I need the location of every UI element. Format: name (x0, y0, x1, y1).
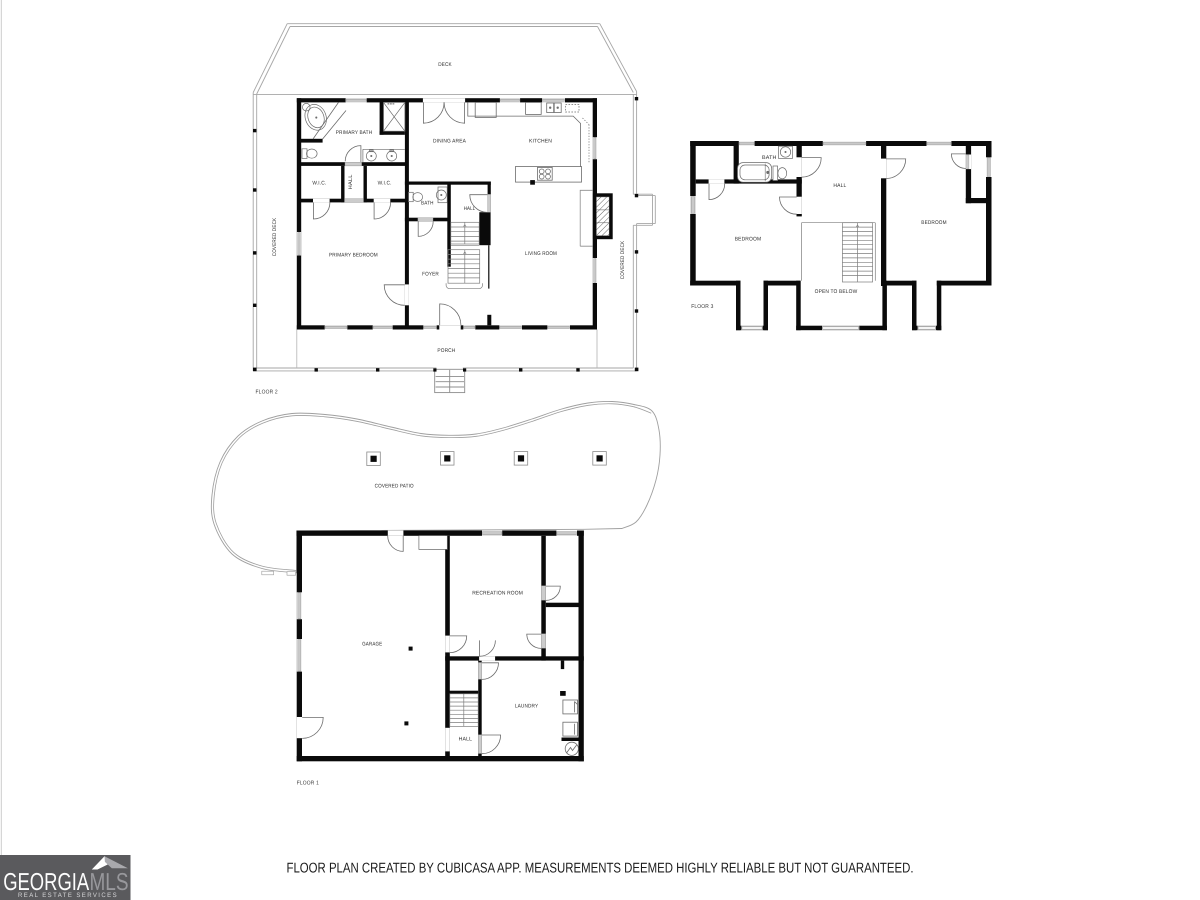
svg-text:W.I.C.: W.I.C. (312, 180, 326, 186)
svg-text:PRIMARY BEDROOM: PRIMARY BEDROOM (329, 253, 378, 259)
svg-text:BATH: BATH (421, 200, 434, 206)
svg-text:OPEN TO BELOW: OPEN TO BELOW (815, 289, 858, 295)
svg-text:KITCHEN: KITCHEN (529, 139, 552, 145)
svg-text:LIVING ROOM: LIVING ROOM (525, 251, 557, 257)
svg-text:FLOOR 1: FLOOR 1 (297, 780, 319, 786)
svg-text:FOYER: FOYER (422, 271, 439, 277)
svg-text:COVERED DECK: COVERED DECK (620, 240, 626, 279)
svg-text:W.I.C.: W.I.C. (378, 180, 392, 186)
svg-text:PORCH: PORCH (437, 348, 455, 354)
svg-text:BATH: BATH (762, 155, 777, 161)
svg-text:FLOOR 3: FLOOR 3 (691, 304, 713, 310)
svg-text:FLOOR 2: FLOOR 2 (256, 390, 278, 396)
svg-text:DINING AREA: DINING AREA (433, 139, 466, 145)
svg-text:REAL ESTATE SERVICES: REAL ESTATE SERVICES (18, 892, 118, 899)
svg-text:FLOOR PLAN CREATED BY CUBICASA: FLOOR PLAN CREATED BY CUBICASA APP. MEAS… (287, 861, 914, 877)
svg-text:HALL: HALL (348, 174, 354, 189)
svg-text:GARAGE: GARAGE (362, 642, 382, 648)
svg-text:RECREATION ROOM: RECREATION ROOM (472, 590, 523, 596)
svg-text:COVERED DECK: COVERED DECK (272, 217, 278, 256)
svg-text:HALL: HALL (459, 737, 473, 743)
svg-text:COVERED PATIO: COVERED PATIO (375, 483, 414, 489)
svg-text:DECK: DECK (438, 62, 452, 68)
svg-text:BEDROOM: BEDROOM (735, 237, 762, 243)
svg-text:HALL: HALL (833, 183, 846, 189)
svg-text:LAUNDRY: LAUNDRY (515, 703, 539, 709)
svg-text:PRIMARY BATH: PRIMARY BATH (336, 130, 373, 136)
svg-text:HALL: HALL (464, 206, 476, 212)
svg-text:BEDROOM: BEDROOM (921, 220, 946, 226)
